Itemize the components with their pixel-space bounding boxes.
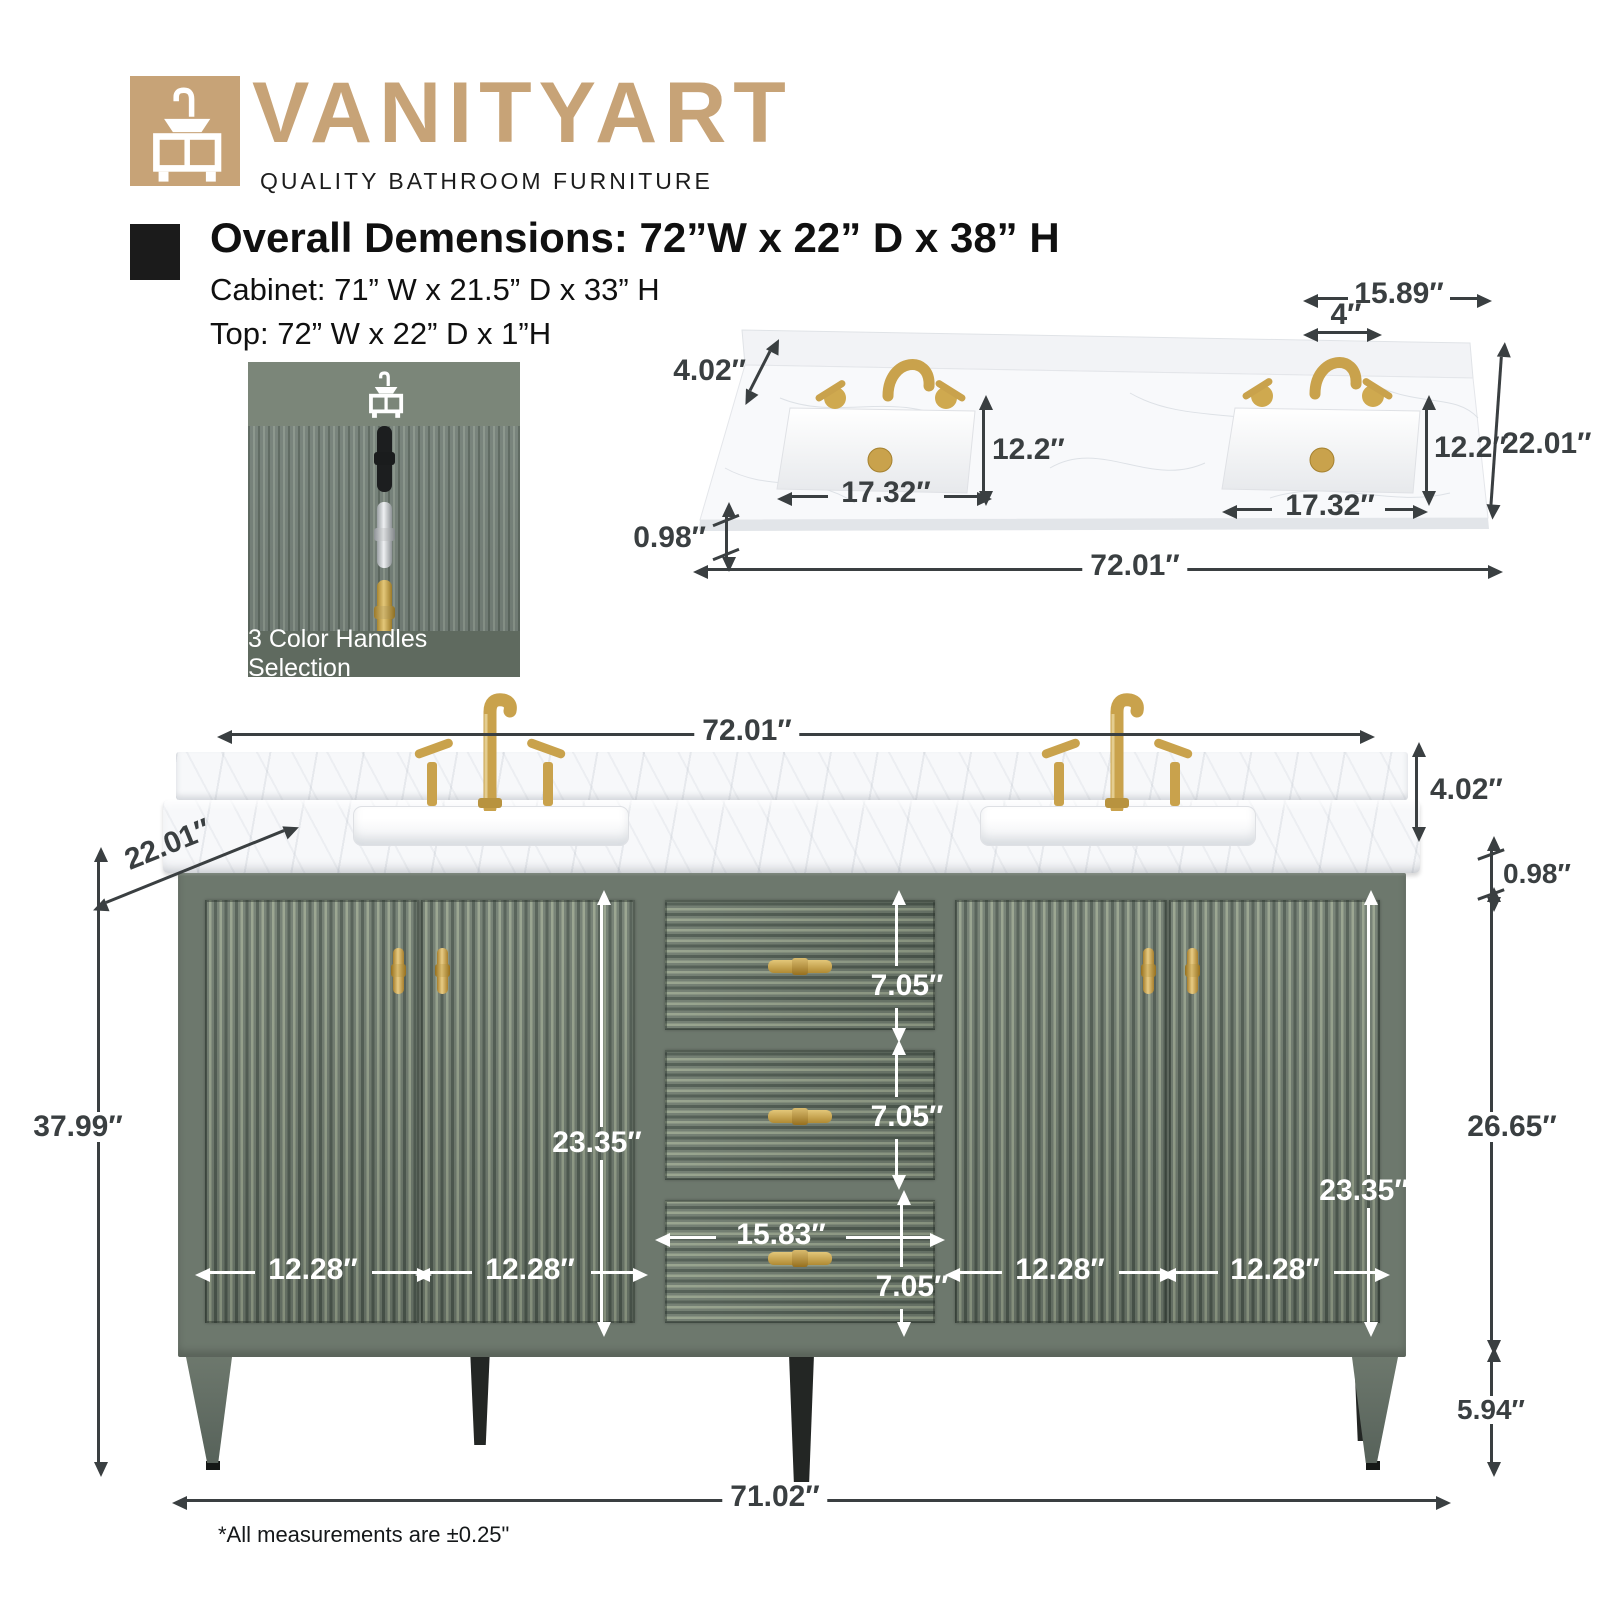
vanity-spec-sheet: VANITYART QUALITY BATHROOM FURNITURE Ove… <box>0 0 1600 1600</box>
arrow-sink-depth-left <box>982 410 985 491</box>
arrow-door-height-right-b <box>1367 1208 1370 1322</box>
dim-fv-height: 37.99″ <box>25 1112 130 1142</box>
arrow-door3-width-b <box>1119 1271 1160 1274</box>
fv-left-faucet <box>410 686 570 811</box>
inner-leg-left <box>468 1357 492 1445</box>
arrow-drawer2-a <box>895 1055 898 1097</box>
dim-fv-backsplash: 4.02″ <box>1430 775 1503 805</box>
brand-tagline: QUALITY BATHROOM FURNITURE <box>260 168 713 195</box>
dim-back-width: 15.89″ <box>1354 279 1443 309</box>
arrow-sink-width-right-b <box>1385 508 1413 511</box>
top-dimensions: Top: 72” W x 22” D x 1”H <box>210 316 551 352</box>
dim-tv-depth: 22.01″ <box>1502 429 1591 459</box>
dim-fv-width: 72.01″ <box>694 716 799 746</box>
overall-dimensions-heading: Overall Demensions: 72”W x 22” D x 38” H <box>210 214 1060 262</box>
dim-door4-width: 12.28″ <box>1230 1255 1319 1285</box>
vanity-icon <box>358 366 412 420</box>
dim-drawer1-height: 7.05″ <box>871 971 944 1001</box>
door-right-1-handle <box>1143 948 1154 994</box>
arrow-drawer-width-b <box>846 1236 930 1239</box>
arrow-door1-width-b <box>372 1271 417 1274</box>
drawer-3-handle <box>768 1252 832 1265</box>
dim-faucet-spread: 4″ <box>1330 300 1361 330</box>
fv-right-sink <box>980 806 1256 846</box>
swatch-caption: 3 Color Handles Selection <box>248 631 520 677</box>
fv-left-sink <box>353 806 629 846</box>
brand-name: VANITYART <box>252 64 793 163</box>
front-leg-left <box>186 1357 232 1463</box>
dim-sink-depth-right: 12.2″ <box>1434 433 1507 463</box>
dim-door-height-left: 23.35″ <box>552 1128 641 1158</box>
dim-sink-width-left: 17.32″ <box>841 478 930 508</box>
dim-door1-width: 12.28″ <box>268 1255 357 1285</box>
drawer-1-handle <box>768 960 832 973</box>
arrow-drawer1-b <box>895 1008 898 1028</box>
dim-fv-leg-height: 5.94″ <box>1449 1396 1533 1424</box>
arrow-faucet-spread <box>1318 331 1367 334</box>
fv-right-faucet <box>1037 686 1197 811</box>
arrow-drawer-width-a <box>670 1236 716 1239</box>
door-left-1-handle <box>393 948 404 994</box>
arrow-drawer1-a <box>895 905 898 966</box>
dim-drawer2-height: 7.05″ <box>871 1102 944 1132</box>
arrow-door2-width-a <box>430 1271 472 1274</box>
arrow-drawer2-b <box>895 1139 898 1175</box>
handle-color-swatch: 3 Color Handles Selection <box>248 362 520 677</box>
dim-drawer3-height: 7.05″ <box>876 1272 949 1302</box>
dim-sink-width-right: 17.32″ <box>1285 491 1374 521</box>
tolerance-footnote: *All measurements are ±0.25" <box>218 1522 509 1548</box>
dim-door-height-right: 23.35″ <box>1319 1176 1408 1206</box>
arrow-fv-height <box>97 862 100 1462</box>
cabinet-dimensions: Cabinet: 71” W x 21.5” D x 33” H <box>210 272 660 308</box>
door-left-2-handle <box>437 948 448 994</box>
chrome-handle-icon <box>377 502 392 568</box>
left-drain-icon <box>868 448 892 472</box>
drawer-2-handle <box>768 1110 832 1123</box>
arrow-sink-width-right-a <box>1237 508 1272 511</box>
arrow-door2-width-b <box>591 1271 633 1274</box>
arrow-door-height-right-a <box>1367 905 1370 1175</box>
arrow-drawer3-b <box>900 1309 903 1322</box>
dim-drawer-width: 15.83″ <box>736 1220 825 1250</box>
center-leg <box>786 1357 817 1488</box>
arrow-door4-width-b <box>1334 1271 1375 1274</box>
arrow-door-height-left-b <box>600 1160 603 1322</box>
brand-logo-icon <box>130 76 240 186</box>
arrow-door1-width-a <box>210 1271 255 1274</box>
arrow-sink-width-left-b <box>944 495 977 498</box>
black-handle-icon <box>377 426 392 492</box>
dim-tv-thickness: 0.98″ <box>633 523 706 553</box>
fv-backsplash <box>176 752 1408 800</box>
door-right-2-handle <box>1187 948 1198 994</box>
arrow-back-width-right <box>1450 297 1477 300</box>
arrow-fv-backsplash <box>1415 757 1418 827</box>
arrow-door4-width-a <box>1176 1271 1218 1274</box>
dim-fv-base-width: 71.02″ <box>722 1482 827 1512</box>
heading-bullet <box>130 224 180 280</box>
right-drain-icon <box>1310 448 1334 472</box>
dim-sink-depth-left: 12.2″ <box>992 435 1065 465</box>
arrow-sink-width-left-a <box>792 495 828 498</box>
dim-door2-width: 12.28″ <box>485 1255 574 1285</box>
dim-fv-thickness: 0.98″ <box>1503 860 1571 888</box>
front-leg-right <box>1352 1357 1398 1463</box>
dim-tv-width: 72.01″ <box>1082 551 1187 581</box>
dim-fv-cabinet-height: 26.65″ <box>1459 1112 1564 1142</box>
dim-tv-backsplash: 4.02″ <box>673 356 746 386</box>
arrow-sink-depth-right <box>1425 410 1428 491</box>
arrow-door-height-left-a <box>600 905 603 1127</box>
arrow-door3-width-a <box>960 1271 1002 1274</box>
dim-door3-width: 12.28″ <box>1015 1255 1104 1285</box>
